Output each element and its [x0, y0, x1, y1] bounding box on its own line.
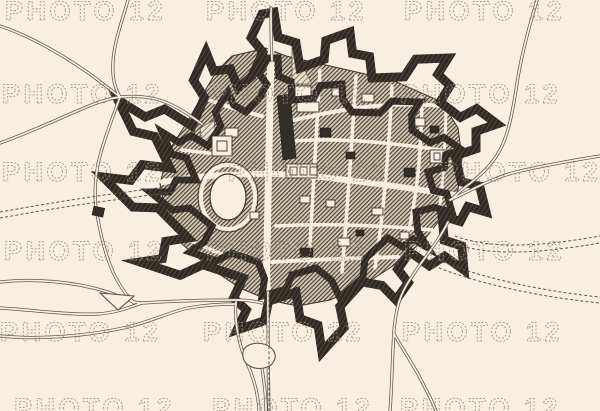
watermark-text: PHOTO 12 [404, 236, 565, 266]
watermark-text: PHOTO 12 [2, 157, 163, 187]
watermark-text: PHOTO 12 [206, 236, 367, 266]
watermark-text: PHOTO 12 [400, 79, 561, 109]
map-canvas: PHOTO 12PHOTO 12PHOTO 12PHOTO 12PHOTO 12… [0, 0, 600, 411]
watermark-text: PHOTO 12 [5, 0, 166, 26]
watermark-text: PHOTO 12 [0, 317, 161, 347]
watermark-text: PHOTO 12 [402, 317, 563, 347]
watermark-text: PHOTO 12 [404, 0, 565, 26]
watermark-text: PHOTO 12 [206, 0, 367, 26]
watermark-text: PHOTO 12 [440, 157, 600, 187]
watermark-text: PHOTO 12 [4, 236, 165, 266]
watermark-text: PHOTO 12 [228, 157, 389, 187]
antique-map-figure: PHOTO 12PHOTO 12PHOTO 12PHOTO 12PHOTO 12… [0, 0, 600, 411]
watermark-text: PHOTO 12 [2, 79, 163, 109]
outwork-detail [212, 136, 232, 156]
watermark-text: PHOTO 12 [400, 393, 561, 411]
roadside-buildings [92, 206, 105, 217]
watermark-text: PHOTO 12 [203, 317, 364, 347]
watermark-text: PHOTO 12 [212, 393, 373, 411]
pond [243, 343, 275, 368]
watermark-text: PHOTO 12 [14, 393, 175, 411]
watermark-text: PHOTO 12 [208, 79, 369, 109]
